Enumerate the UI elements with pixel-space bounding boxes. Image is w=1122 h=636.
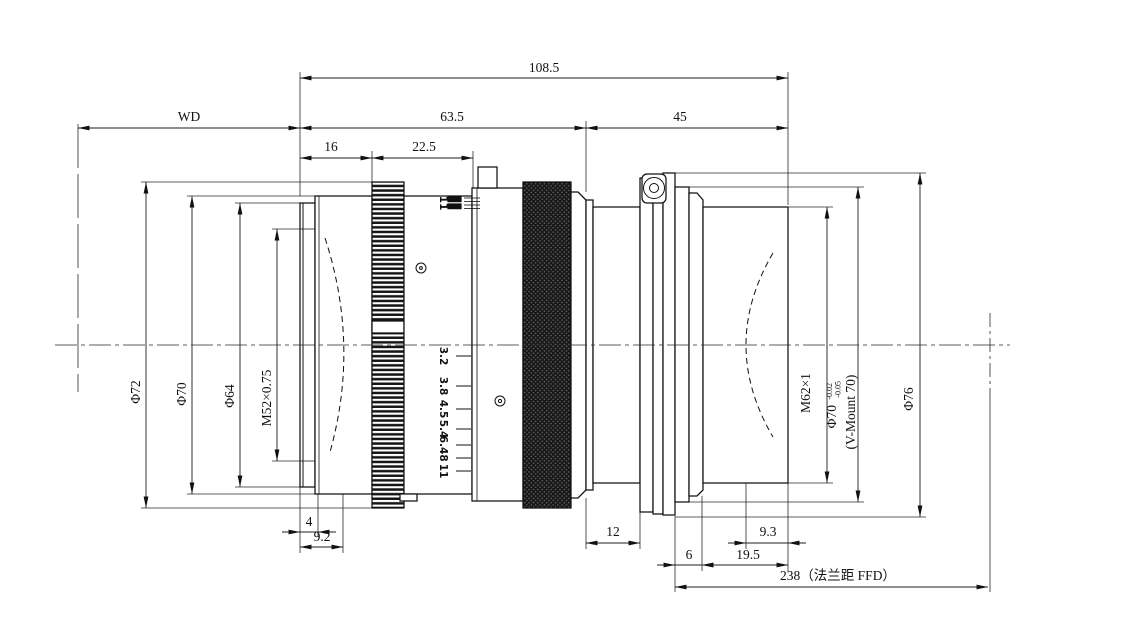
- dim-overall-length: 108.5: [300, 60, 788, 78]
- dim-rear-module: 45: [586, 109, 788, 128]
- dim-19-5: 19.5: [702, 547, 788, 565]
- dim-label: 4: [306, 514, 313, 529]
- dim-9-3: 9.3: [728, 524, 806, 543]
- dia-label: M62×1: [798, 373, 813, 413]
- dim-phi70-vmount: Φ70 -0.02 -0.05 (V-Mount 70): [820, 187, 858, 502]
- dim-22-5: 22.5: [372, 139, 473, 158]
- fstop-label: 6.4: [437, 436, 449, 455]
- dim-label: 6: [686, 547, 693, 562]
- dim-label: 45: [673, 109, 687, 124]
- dia-label: Φ70 -0.02 -0.05: [820, 380, 843, 429]
- dim-12: 12: [586, 524, 640, 543]
- dim-label: 19.5: [736, 547, 760, 562]
- dim-label: 238（法兰距 FFD）: [780, 568, 896, 583]
- fstop-label: 3.8: [437, 377, 449, 396]
- top-scale-label: 11: [437, 196, 449, 211]
- dim-label: WD: [178, 109, 201, 124]
- dim-6: 6: [657, 547, 720, 565]
- dim-label: 9.3: [760, 524, 777, 539]
- fstop-label: 3.2: [437, 347, 449, 366]
- dia-label: Φ72: [128, 380, 143, 403]
- fstop-label: 11: [437, 464, 449, 479]
- dim-ffd: 238（法兰距 FFD）: [675, 568, 988, 587]
- flange-chamfer-ring: [689, 193, 703, 496]
- vmount-label: (V-Mount 70): [843, 375, 858, 450]
- dia-label: Φ70: [174, 382, 189, 406]
- dim-label: 22.5: [412, 139, 436, 154]
- dim-label: 63.5: [440, 109, 464, 124]
- dia-label: M52×0.75: [259, 369, 274, 426]
- vmount-flange: [675, 187, 689, 502]
- lens-body: 11 3.2 3.8 4.5 5.4 6.4 8 11: [300, 167, 788, 515]
- drawing-canvas: 11 3.2 3.8 4.5 5.4 6.4 8 11: [0, 0, 1122, 636]
- lens-technical-drawing: 11 3.2 3.8 4.5 5.4 6.4 8 11: [0, 0, 1122, 636]
- lock-knob: [478, 167, 497, 188]
- fstop-label: 4.5: [437, 400, 449, 419]
- dia-label: Φ76: [901, 387, 916, 411]
- dim-front-module: 63.5: [300, 109, 586, 128]
- lock-notch: [400, 494, 417, 501]
- dia-label: Φ64: [222, 384, 237, 408]
- dim-label: 108.5: [529, 60, 560, 75]
- dim-16: 16: [300, 139, 372, 158]
- dim-label: 12: [606, 524, 620, 539]
- dim-working-distance: WD: [78, 109, 300, 128]
- dim-label: 9.2: [314, 529, 331, 544]
- dim-label: 16: [324, 139, 338, 154]
- index-ring: [472, 188, 523, 501]
- fstop-label: 8: [437, 454, 449, 461]
